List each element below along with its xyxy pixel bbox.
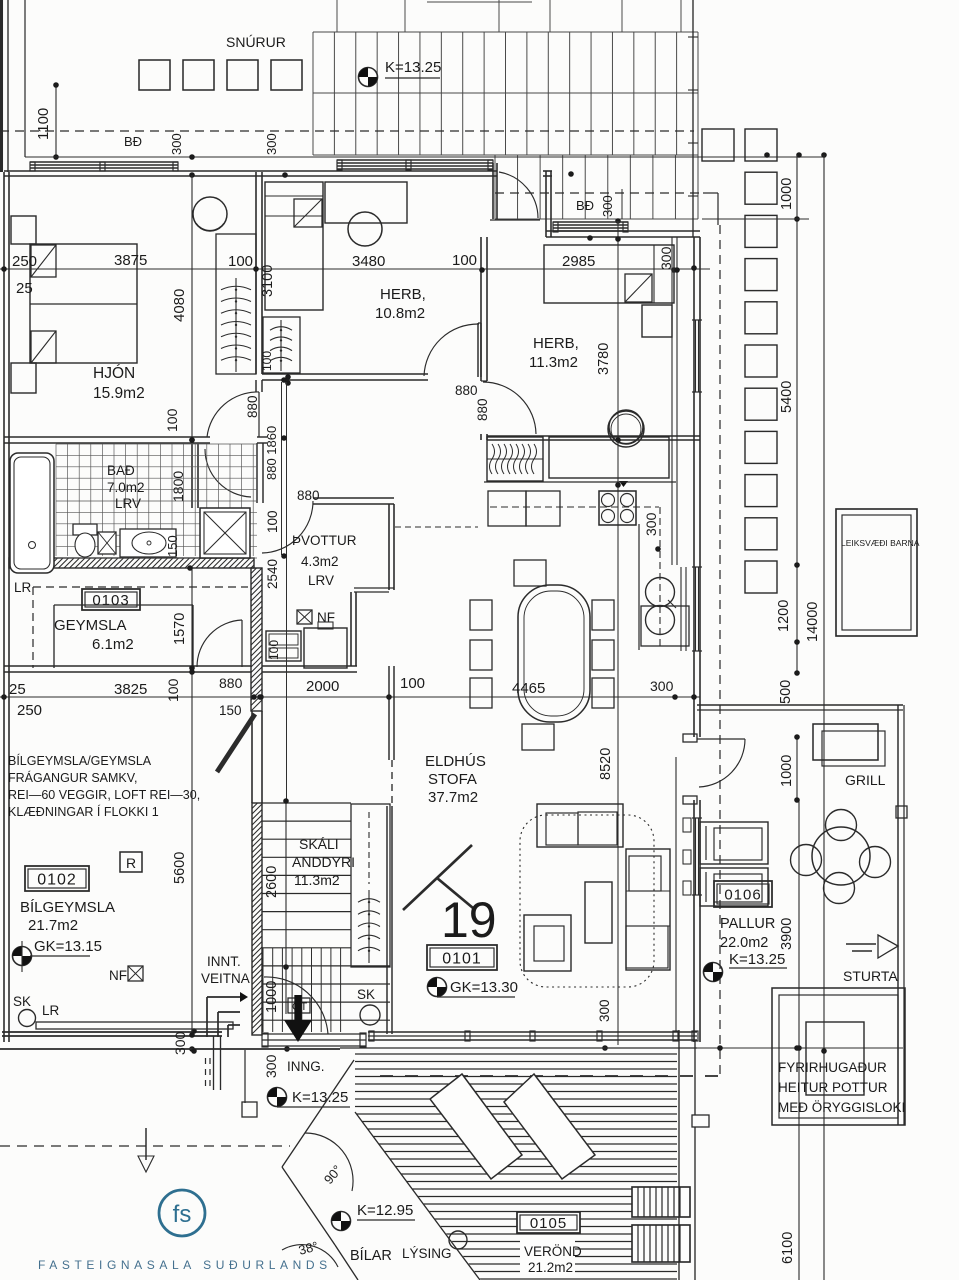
- svg-text:8520: 8520: [598, 748, 614, 780]
- svg-text:BAÐ: BAÐ: [107, 463, 135, 478]
- svg-text:300: 300: [658, 246, 674, 270]
- svg-text:300: 300: [169, 133, 184, 155]
- svg-text:4.3m2: 4.3m2: [301, 554, 339, 569]
- svg-text:500: 500: [778, 680, 794, 704]
- svg-text:LR: LR: [42, 1003, 60, 1018]
- svg-text:0105: 0105: [530, 1215, 567, 1232]
- svg-text:6100: 6100: [780, 1232, 796, 1264]
- svg-text:100: 100: [267, 640, 281, 660]
- svg-text:22.0m2: 22.0m2: [720, 935, 768, 951]
- svg-text:BÍLAR: BÍLAR: [350, 1247, 392, 1264]
- svg-text:K=13.25: K=13.25: [385, 59, 441, 76]
- svg-text:SNÚRUR: SNÚRUR: [226, 34, 286, 50]
- svg-text:BÐ: BÐ: [576, 198, 594, 213]
- svg-text:SK: SK: [13, 994, 31, 1009]
- svg-text:250: 250: [17, 702, 42, 719]
- svg-text:2000: 2000: [306, 678, 339, 695]
- svg-text:GK=13.15: GK=13.15: [34, 938, 102, 955]
- svg-text:HJÓN: HJÓN: [93, 365, 135, 382]
- svg-text:LR: LR: [14, 580, 32, 595]
- svg-text:HEITUR POTTUR: HEITUR POTTUR: [778, 1080, 888, 1095]
- svg-text:1570: 1570: [172, 613, 188, 645]
- svg-text:25: 25: [9, 681, 26, 698]
- svg-text:14000: 14000: [805, 602, 821, 642]
- svg-text:K=13.25: K=13.25: [292, 1089, 348, 1106]
- svg-text:STURTA: STURTA: [843, 968, 898, 984]
- svg-text:1100: 1100: [35, 108, 52, 140]
- svg-text:K=13.25: K=13.25: [729, 951, 785, 968]
- svg-text:NF: NF: [109, 968, 127, 983]
- svg-text:GRILL: GRILL: [845, 772, 886, 788]
- svg-text:0102: 0102: [37, 871, 77, 888]
- svg-text:VEITNA: VEITNA: [201, 971, 250, 986]
- svg-text:LRV: LRV: [115, 496, 141, 511]
- svg-text:1000: 1000: [779, 755, 795, 787]
- svg-text:K=12.95: K=12.95: [357, 1202, 413, 1219]
- svg-text:11.3m2: 11.3m2: [529, 354, 578, 371]
- svg-text:SK: SK: [357, 987, 375, 1002]
- svg-text:100: 100: [260, 351, 274, 371]
- svg-text:2600: 2600: [264, 866, 280, 898]
- svg-text:5400: 5400: [779, 381, 795, 413]
- svg-text:4080: 4080: [171, 289, 188, 322]
- svg-text:ELDHÚS: ELDHÚS: [425, 753, 486, 770]
- svg-text:880: 880: [297, 488, 320, 503]
- svg-text:HERB,: HERB,: [380, 286, 426, 303]
- svg-text:3825: 3825: [114, 681, 147, 698]
- svg-text:300: 300: [643, 512, 659, 536]
- svg-text:1000: 1000: [779, 178, 795, 210]
- svg-text:NF: NF: [317, 610, 335, 625]
- svg-text:15.9m2: 15.9m2: [93, 385, 145, 402]
- svg-text:INNT.: INNT.: [207, 954, 241, 969]
- svg-text:100: 100: [400, 675, 425, 692]
- svg-text:300: 300: [264, 133, 279, 155]
- svg-text:R: R: [126, 855, 136, 871]
- svg-text:fs: fs: [173, 1201, 192, 1228]
- svg-text:LEIKSVÆÐI BARNA: LEIKSVÆÐI BARNA: [841, 538, 920, 548]
- svg-text:250: 250: [12, 253, 37, 270]
- svg-text:BÍLGEYMSLA: BÍLGEYMSLA: [20, 899, 115, 916]
- svg-text:880: 880: [455, 383, 478, 398]
- svg-text:3780: 3780: [596, 343, 612, 375]
- svg-text:100: 100: [165, 678, 181, 702]
- svg-text:MEÐ ÖRYGGISLOKI: MEÐ ÖRYGGISLOKI: [778, 1100, 905, 1115]
- svg-text:7.0m2: 7.0m2: [107, 480, 145, 495]
- svg-text:21.7m2: 21.7m2: [28, 917, 78, 934]
- svg-text:ANDDYRI: ANDDYRI: [292, 854, 355, 870]
- svg-text:SKÁLI: SKÁLI: [299, 836, 339, 852]
- svg-text:38°: 38°: [297, 1238, 320, 1258]
- svg-text:1800: 1800: [170, 471, 186, 502]
- svg-text:ÞVOTTUR: ÞVOTTUR: [292, 533, 357, 548]
- svg-text:90°: 90°: [321, 1162, 345, 1187]
- svg-text:HERB,: HERB,: [533, 335, 579, 352]
- svg-text:3100: 3100: [260, 265, 276, 297]
- svg-text:880: 880: [245, 395, 260, 418]
- svg-text:19: 19: [441, 892, 497, 948]
- svg-text:150: 150: [219, 703, 242, 718]
- svg-text:2540: 2540: [265, 559, 280, 589]
- svg-text:300: 300: [263, 1054, 279, 1078]
- svg-text:3875: 3875: [114, 252, 147, 269]
- svg-text:37.7m2: 37.7m2: [428, 789, 478, 806]
- svg-text:BÍLGEYMSLA/GEYMSLA: BÍLGEYMSLA/GEYMSLA: [8, 753, 152, 768]
- svg-text:REI—60 VEGGIR, LOFT REI—30,: REI—60 VEGGIR, LOFT REI—30,: [8, 788, 200, 802]
- svg-text:10.8m2: 10.8m2: [375, 305, 425, 322]
- svg-text:0106: 0106: [724, 886, 761, 903]
- svg-text:25: 25: [16, 280, 33, 297]
- svg-text:300: 300: [600, 195, 615, 217]
- svg-text:300: 300: [650, 678, 674, 694]
- svg-text:INNG.: INNG.: [287, 1059, 325, 1074]
- svg-text:4465: 4465: [512, 680, 545, 697]
- svg-text:21.2m2: 21.2m2: [528, 1260, 573, 1275]
- svg-text:GEYMSLA: GEYMSLA: [54, 617, 127, 634]
- svg-text:3480: 3480: [352, 253, 385, 270]
- svg-text:LÝSING: LÝSING: [402, 1246, 452, 1261]
- svg-text:880: 880: [219, 675, 243, 691]
- svg-text:11.3m2: 11.3m2: [294, 872, 340, 888]
- svg-text:FRÁGANGUR SAMKV,: FRÁGANGUR SAMKV,: [8, 770, 137, 785]
- svg-text:FYRIRHUGAÐUR: FYRIRHUGAÐUR: [778, 1060, 887, 1075]
- svg-text:300: 300: [597, 999, 612, 1022]
- svg-text:100: 100: [228, 253, 253, 270]
- svg-text:KLÆÐNINGAR Í FLOKKI 1: KLÆÐNINGAR Í FLOKKI 1: [8, 804, 159, 819]
- svg-text:1000: 1000: [264, 981, 280, 1013]
- svg-text:VERÖND: VERÖND: [524, 1244, 582, 1259]
- svg-text:1200: 1200: [776, 600, 792, 632]
- svg-text:100: 100: [164, 408, 180, 432]
- svg-text:150: 150: [165, 535, 180, 557]
- svg-text:2985: 2985: [562, 253, 595, 270]
- svg-text:PALLUR: PALLUR: [720, 916, 775, 932]
- svg-text:100: 100: [265, 510, 280, 533]
- svg-text:FASTEIGNASALA SUÐURLANDS: FASTEIGNASALA SUÐURLANDS: [38, 1258, 332, 1272]
- svg-text:STOFA: STOFA: [428, 771, 477, 788]
- svg-text:BÐ: BÐ: [124, 134, 142, 149]
- svg-text:3900: 3900: [779, 918, 795, 950]
- svg-text:5600: 5600: [172, 852, 188, 884]
- svg-text:GK=13.30: GK=13.30: [450, 979, 518, 996]
- svg-text:LRV: LRV: [308, 573, 334, 588]
- svg-text:880: 880: [475, 398, 490, 421]
- svg-text:0103: 0103: [92, 592, 129, 609]
- svg-text:880 1860: 880 1860: [264, 426, 279, 480]
- svg-text:6.1m2: 6.1m2: [92, 636, 134, 653]
- svg-text:0101: 0101: [442, 950, 482, 967]
- svg-text:300: 300: [172, 1031, 188, 1055]
- svg-text:100: 100: [452, 252, 477, 269]
